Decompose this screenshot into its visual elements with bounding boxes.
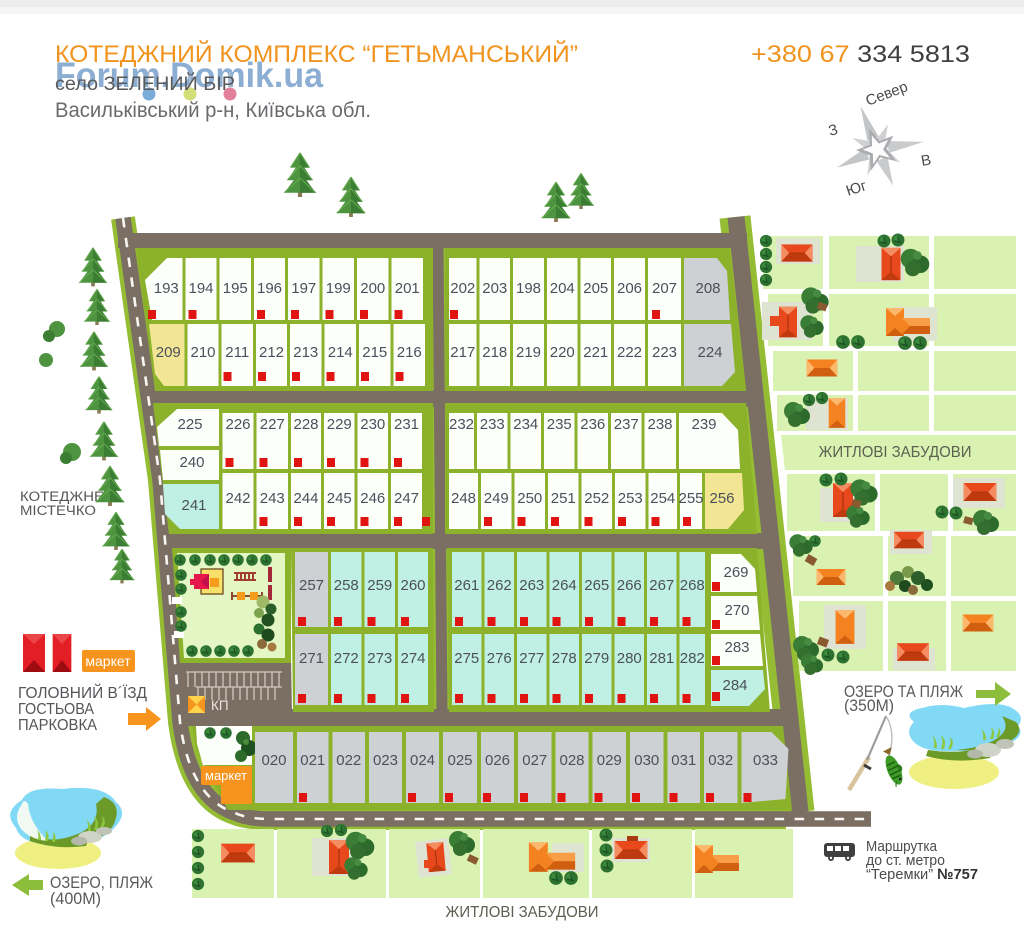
svg-text:195: 195 [223, 280, 248, 297]
svg-text:235: 235 [547, 416, 572, 433]
svg-text:276: 276 [487, 650, 512, 667]
svg-text:228: 228 [293, 416, 318, 433]
svg-text:251: 251 [551, 490, 576, 507]
svg-text:238: 238 [647, 416, 672, 433]
svg-text:199: 199 [326, 280, 351, 297]
svg-text:203: 203 [482, 280, 507, 297]
svg-text:261: 261 [454, 577, 479, 594]
svg-text:281: 281 [649, 650, 674, 667]
svg-text:“Теремки” №757: “Теремки” №757 [866, 866, 978, 883]
svg-text:ЖИТЛОВІ ЗАБУДОВИ: ЖИТЛОВІ ЗАБУДОВИ [446, 904, 599, 921]
svg-text:280: 280 [617, 650, 642, 667]
svg-text:023: 023 [373, 752, 398, 769]
svg-text:247: 247 [394, 490, 419, 507]
svg-text:028: 028 [559, 752, 584, 769]
svg-text:226: 226 [225, 416, 250, 433]
svg-text:249: 249 [484, 490, 509, 507]
svg-text:211: 211 [225, 344, 249, 361]
svg-text:279: 279 [584, 650, 609, 667]
svg-text:212: 212 [259, 344, 284, 361]
svg-text:026: 026 [485, 752, 510, 769]
svg-text:029: 029 [597, 752, 622, 769]
svg-text:222: 222 [617, 344, 642, 361]
svg-text:село ЗЕЛЕНИЙ БІР: село ЗЕЛЕНИЙ БІР [55, 71, 235, 95]
svg-text:025: 025 [447, 752, 472, 769]
svg-text:(400М): (400М) [50, 889, 101, 908]
svg-text:КП: КП [211, 698, 229, 713]
svg-text:256: 256 [709, 490, 734, 507]
svg-text:223: 223 [652, 344, 677, 361]
svg-text:204: 204 [550, 280, 575, 297]
svg-text:268: 268 [680, 577, 705, 594]
svg-text:ГОСТЬОВА: ГОСТЬОВА [18, 701, 94, 718]
svg-text:208: 208 [695, 280, 720, 297]
svg-text:266: 266 [617, 577, 642, 594]
svg-text:220: 220 [550, 344, 575, 361]
svg-text:250: 250 [517, 490, 542, 507]
svg-text:194: 194 [188, 280, 213, 297]
svg-text:274: 274 [400, 650, 425, 667]
svg-text:МІСТЕЧКО: МІСТЕЧКО [20, 503, 96, 518]
svg-text:033: 033 [753, 752, 778, 769]
svg-text:277: 277 [519, 650, 544, 667]
svg-text:231: 231 [394, 416, 419, 433]
svg-text:271: 271 [299, 650, 324, 667]
svg-text:031: 031 [671, 752, 696, 769]
svg-text:253: 253 [618, 490, 643, 507]
svg-text:275: 275 [454, 650, 479, 667]
svg-text:264: 264 [552, 577, 577, 594]
svg-text:265: 265 [584, 577, 609, 594]
svg-text:267: 267 [649, 577, 674, 594]
svg-text:193: 193 [154, 280, 179, 297]
svg-text:257: 257 [299, 577, 324, 594]
svg-text:197: 197 [291, 280, 316, 297]
svg-text:225: 225 [177, 416, 202, 433]
svg-text:227: 227 [260, 416, 285, 433]
svg-text:272: 272 [334, 650, 359, 667]
svg-text:237: 237 [614, 416, 639, 433]
svg-text:207: 207 [652, 280, 677, 297]
svg-text:255: 255 [678, 490, 703, 507]
svg-text:216: 216 [397, 344, 422, 361]
svg-text:020: 020 [261, 752, 286, 769]
svg-text:219: 219 [516, 344, 541, 361]
svg-text:229: 229 [327, 416, 352, 433]
svg-text:027: 027 [522, 752, 547, 769]
svg-text:206: 206 [617, 280, 642, 297]
svg-text:200: 200 [360, 280, 385, 297]
svg-text:218: 218 [482, 344, 507, 361]
svg-text:234: 234 [513, 416, 538, 433]
svg-text:КОТЕДЖНЕ: КОТЕДЖНЕ [20, 489, 104, 504]
svg-text:202: 202 [450, 280, 475, 297]
svg-text:232: 232 [449, 416, 474, 433]
svg-text:283: 283 [724, 639, 749, 656]
svg-text:241: 241 [181, 497, 206, 514]
svg-text:214: 214 [328, 344, 353, 361]
svg-text:маркет: маркет [205, 768, 247, 783]
svg-text:259: 259 [367, 577, 392, 594]
svg-text:217: 217 [450, 344, 475, 361]
svg-text:+380 67 334 5813: +380 67 334 5813 [751, 41, 970, 68]
svg-text:224: 224 [697, 344, 722, 361]
svg-text:022: 022 [336, 752, 361, 769]
svg-text:221: 221 [583, 344, 608, 361]
svg-text:278: 278 [552, 650, 577, 667]
svg-text:236: 236 [580, 416, 605, 433]
svg-text:233: 233 [480, 416, 505, 433]
svg-text:210: 210 [190, 344, 215, 361]
svg-text:(350М): (350М) [844, 697, 894, 715]
svg-text:230: 230 [360, 416, 385, 433]
svg-text:024: 024 [410, 752, 435, 769]
svg-text:242: 242 [225, 490, 250, 507]
svg-text:243: 243 [260, 490, 285, 507]
svg-text:239: 239 [691, 416, 716, 433]
svg-text:209: 209 [156, 344, 181, 361]
svg-text:240: 240 [179, 454, 204, 471]
svg-text:032: 032 [708, 752, 733, 769]
svg-text:201: 201 [395, 280, 420, 297]
svg-text:282: 282 [680, 650, 705, 667]
svg-text:030: 030 [634, 752, 659, 769]
svg-text:284: 284 [722, 677, 747, 694]
svg-text:196: 196 [257, 280, 282, 297]
svg-text:269: 269 [723, 564, 748, 581]
svg-text:213: 213 [293, 344, 318, 361]
svg-text:маркет: маркет [85, 653, 131, 669]
svg-text:252: 252 [584, 490, 609, 507]
svg-text:ПАРКОВКА: ПАРКОВКА [18, 717, 97, 734]
svg-text:263: 263 [519, 577, 544, 594]
svg-text:215: 215 [362, 344, 387, 361]
svg-text:Васильківський р-н, Київська о: Васильківський р-н, Київська обл. [55, 98, 371, 122]
svg-text:246: 246 [360, 490, 385, 507]
svg-text:244: 244 [293, 490, 318, 507]
svg-text:248: 248 [451, 490, 476, 507]
svg-text:262: 262 [487, 577, 512, 594]
svg-text:ЖИТЛОВІ ЗАБУДОВИ: ЖИТЛОВІ ЗАБУДОВИ [819, 444, 972, 461]
svg-text:270: 270 [724, 602, 749, 619]
svg-text:205: 205 [583, 280, 608, 297]
svg-text:245: 245 [327, 490, 352, 507]
svg-text:258: 258 [334, 577, 359, 594]
svg-text:273: 273 [367, 650, 392, 667]
svg-text:021: 021 [300, 752, 325, 769]
svg-text:ГОЛОВНИЙ В´ЇЗД: ГОЛОВНИЙ В´ЇЗД [18, 683, 147, 702]
svg-text:198: 198 [516, 280, 541, 297]
svg-text:260: 260 [400, 577, 425, 594]
svg-text:254: 254 [650, 490, 675, 507]
